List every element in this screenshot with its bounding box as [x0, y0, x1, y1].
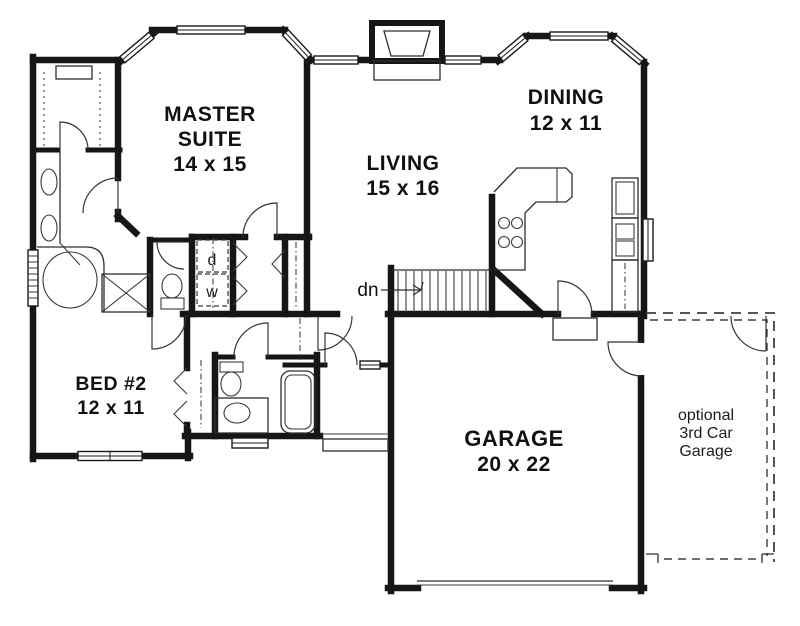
optional-garage-label-line2: 3rd Car [679, 425, 733, 442]
fridge-icon [612, 178, 638, 218]
window [643, 219, 653, 261]
stove-icon [499, 218, 523, 248]
toilet-icon [220, 362, 243, 396]
door-arc [83, 178, 118, 213]
window [314, 56, 358, 64]
window [177, 26, 245, 34]
staircase [381, 270, 492, 312]
counter-peninsula [494, 168, 572, 270]
bifold-door-icon [174, 368, 187, 394]
bed2-label: BED #2 [75, 373, 146, 395]
master-suite-label-line2: SUITE [178, 128, 242, 151]
floor-plan-page: MASTER SUITE 14 x 15 LIVING 15 x 16 DINI… [0, 0, 800, 626]
garage-door-icon [417, 581, 613, 585]
door-opening [635, 343, 648, 375]
window [612, 35, 645, 64]
pantry-counter-icon [612, 260, 638, 312]
fireplace-icon [372, 23, 442, 80]
master-suite-label-line1: MASTER [164, 103, 256, 126]
door-arc [157, 242, 184, 269]
hall-bath-fixtures [215, 362, 315, 433]
door-arc [243, 203, 277, 237]
stairs-down-arrow-icon [381, 282, 423, 295]
stairs-dn-label: dn [357, 280, 378, 301]
window [498, 35, 528, 62]
window [78, 452, 142, 461]
dining-label: DINING [528, 86, 605, 109]
tub-icon [43, 252, 97, 308]
wall-oven-icon [612, 218, 638, 260]
sink-icon [41, 169, 57, 195]
tub-platform [37, 247, 104, 312]
optional-garage-label-line1: optional [678, 407, 734, 424]
porch-stoop [323, 439, 388, 451]
front-door-arc [325, 333, 357, 365]
tub-icon [281, 371, 315, 433]
window [232, 438, 268, 448]
optional-garage-label-line3: Garage [679, 443, 732, 460]
dining-dims: 12 x 11 [530, 112, 602, 135]
door-arc [60, 122, 88, 150]
shower-icon [102, 274, 150, 312]
laundry-closet [197, 238, 247, 308]
door-arc [731, 316, 766, 351]
washer-label: w [205, 284, 218, 301]
closet-shelf [56, 66, 92, 79]
sink-icon [41, 215, 57, 241]
window [120, 32, 154, 63]
sink-icon [224, 403, 250, 423]
master-suite-dims: 14 x 15 [173, 153, 247, 176]
garage-label: GARAGE [464, 426, 564, 451]
dryer-label: d [208, 252, 217, 269]
bed2-dims: 12 x 11 [77, 397, 144, 419]
window-sidelite [360, 361, 380, 369]
living-label: LIVING [366, 152, 439, 175]
garage-stoop [553, 318, 597, 340]
window [282, 30, 311, 60]
master-bath-fixtures [37, 66, 184, 312]
window [445, 56, 481, 64]
door-arc [152, 315, 186, 349]
window [550, 32, 608, 40]
labels: MASTER SUITE 14 x 15 LIVING 15 x 16 DINI… [75, 86, 734, 476]
garage-entry-door-arc [558, 281, 592, 314]
living-dims: 15 x 16 [366, 177, 440, 200]
door-arc [234, 323, 268, 357]
floor-plan-drawing: MASTER SUITE 14 x 15 LIVING 15 x 16 DINI… [0, 0, 800, 626]
toilet-icon [161, 274, 184, 309]
glass-block-window-icon [28, 250, 38, 306]
garage-dims: 20 x 22 [477, 453, 551, 476]
door-arc [318, 316, 352, 350]
